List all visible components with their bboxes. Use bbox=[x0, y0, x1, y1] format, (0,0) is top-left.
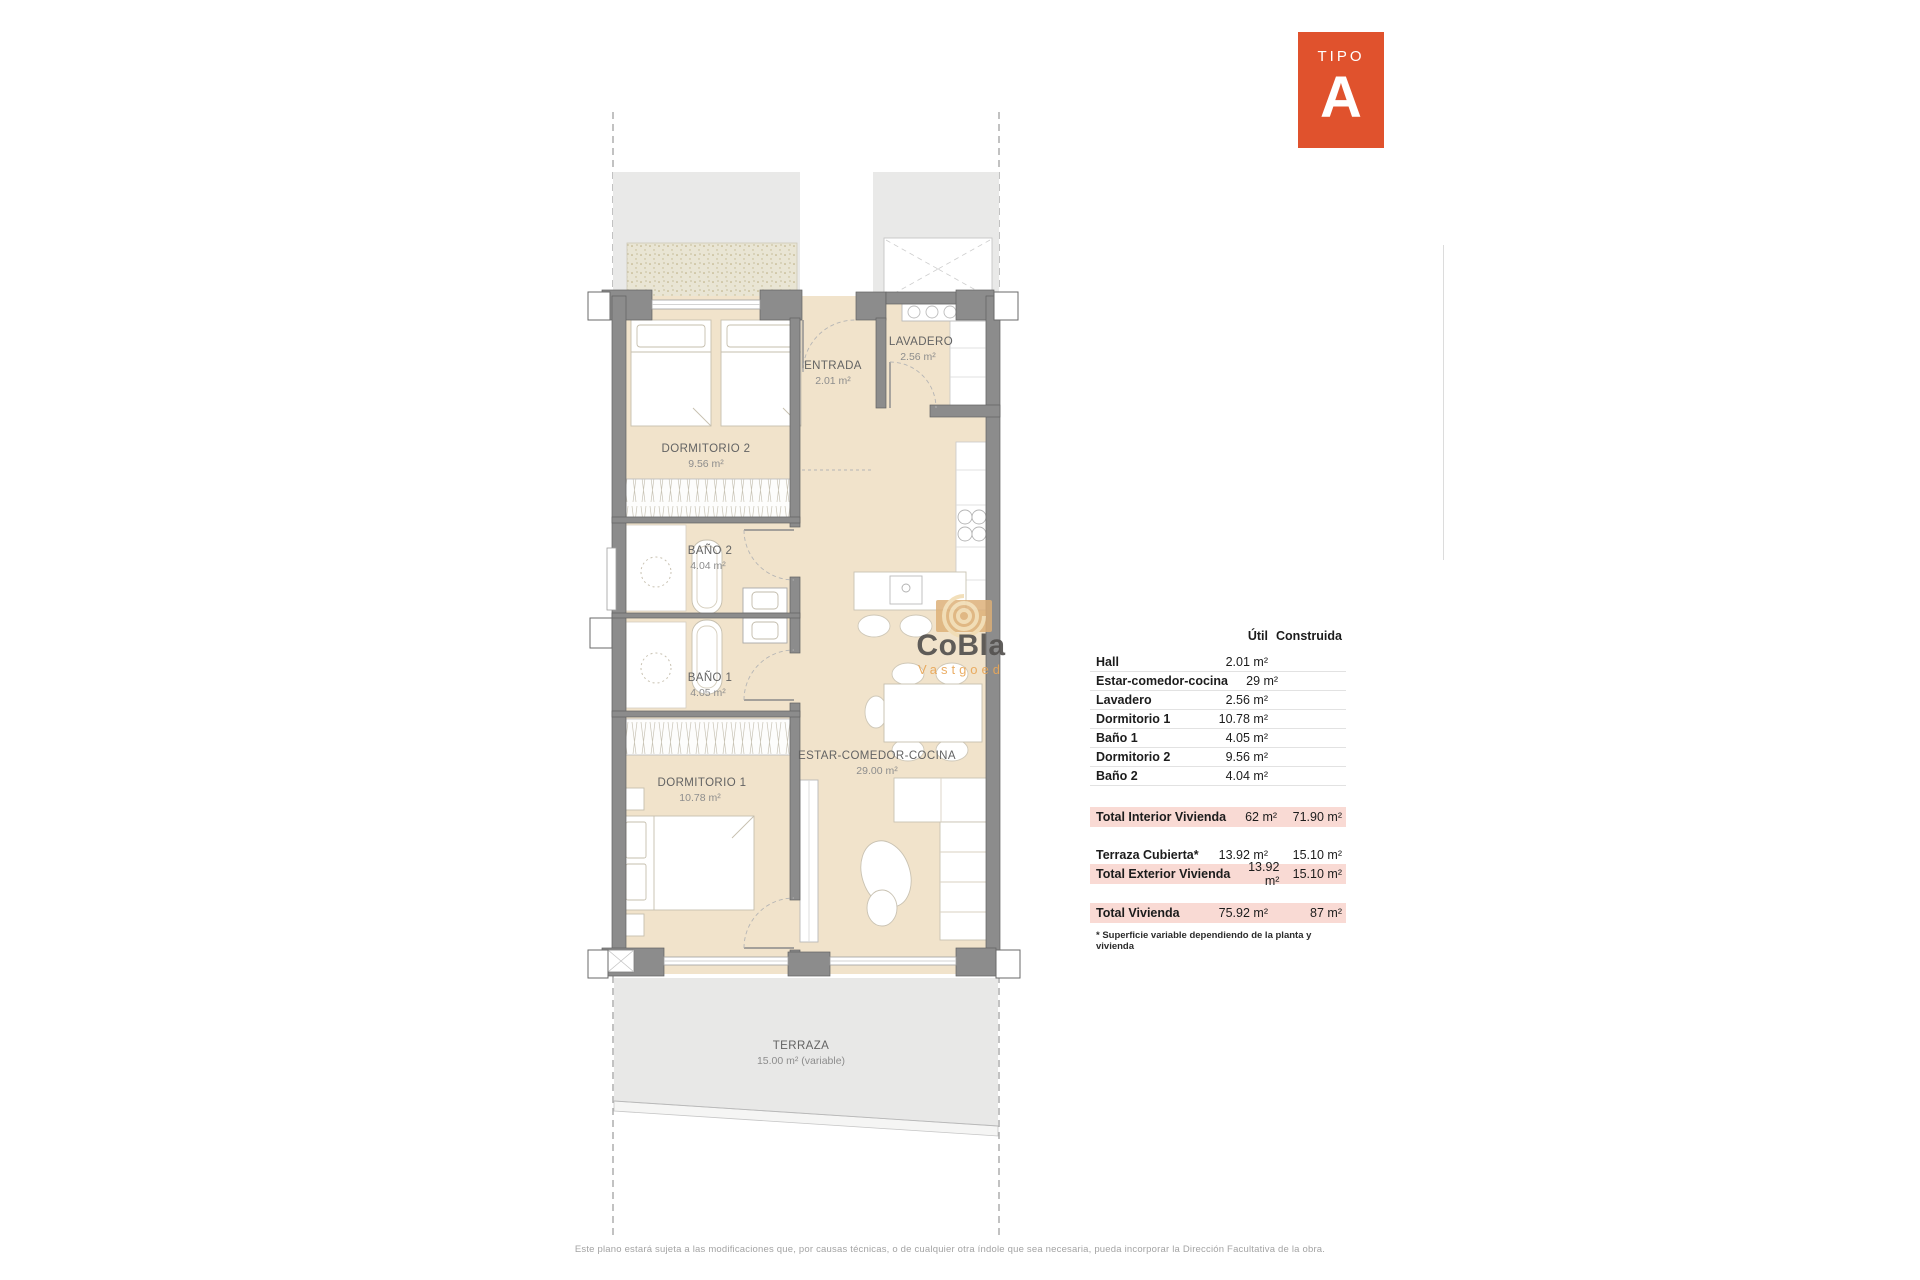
svg-text:4.04 m²: 4.04 m² bbox=[690, 560, 726, 572]
label-entrada: ENTRADA bbox=[804, 360, 862, 372]
total-vivienda-row: Total Vivienda 75.92 m² 87 m² bbox=[1090, 903, 1346, 923]
total-interior-row: Total Interior Vivienda 62 m² 71.90 m² bbox=[1090, 807, 1346, 827]
table-row: Lavadero 2.56 m² bbox=[1090, 691, 1346, 710]
total-exterior-row: Total Exterior Vivienda 13.92 m² 15.10 m… bbox=[1090, 864, 1346, 884]
table-row: Dormitorio 1 10.78 m² bbox=[1090, 710, 1346, 729]
svg-text:10.78 m²: 10.78 m² bbox=[679, 792, 721, 804]
table-row: Baño 2 4.04 m² bbox=[1090, 767, 1346, 786]
svg-text:29.00 m²: 29.00 m² bbox=[856, 765, 898, 777]
label-terraza: TERRAZA bbox=[773, 1040, 829, 1052]
type-badge-label: TIPO bbox=[1317, 48, 1364, 65]
table-header-row: Útil Construida bbox=[1090, 627, 1346, 645]
header-util: Útil bbox=[1210, 629, 1268, 643]
label-dormitorio-1: DORMITORIO 1 bbox=[658, 777, 747, 789]
label-bano-2: BAÑO 2 bbox=[688, 544, 733, 557]
table-row: Dormitorio 2 9.56 m² bbox=[1090, 748, 1346, 767]
type-badge: TIPO A bbox=[1298, 32, 1384, 148]
footer-disclaimer: Este plano estará sujeta a las modificac… bbox=[0, 1244, 1900, 1255]
label-lavadero: LAVADERO bbox=[889, 336, 953, 348]
table-row: Estar-comedor-cocina 29 m² bbox=[1090, 672, 1346, 691]
label-bano-1: BAÑO 1 bbox=[688, 671, 733, 684]
watermark-brand: CoBla bbox=[905, 631, 1017, 661]
table-row: Baño 1 4.05 m² bbox=[1090, 729, 1346, 748]
svg-text:4.05 m²: 4.05 m² bbox=[690, 687, 726, 699]
header-construida: Construida bbox=[1268, 629, 1342, 643]
svg-text:15.00 m² (variable): 15.00 m² (variable) bbox=[757, 1055, 845, 1067]
svg-text:2.56 m²: 2.56 m² bbox=[900, 351, 936, 363]
watermark-sub: Vastgoed bbox=[905, 662, 1017, 677]
watermark: CoBla Vastgoed bbox=[905, 592, 1017, 677]
table-footnote: * Superficie variable dependiendo de la … bbox=[1090, 930, 1346, 952]
upper-patio-area bbox=[613, 172, 999, 300]
svg-text:9.56 m²: 9.56 m² bbox=[688, 458, 724, 470]
type-badge-letter: A bbox=[1320, 69, 1362, 127]
label-estar-comedor-cocina: ESTAR-COMEDOR-COCINA bbox=[798, 750, 956, 762]
areas-table: Útil Construida Hall 2.01 m² Estar-comed… bbox=[1090, 627, 1346, 952]
page-fold-line bbox=[1443, 245, 1444, 560]
terraza-cubierta-row: Terraza Cubierta* 13.92 m² 15.10 m² bbox=[1090, 845, 1346, 864]
svg-text:2.01 m²: 2.01 m² bbox=[815, 375, 851, 387]
table-rows: Hall 2.01 m² Estar-comedor-cocina 29 m² … bbox=[1090, 653, 1346, 786]
label-dormitorio-2: DORMITORIO 2 bbox=[662, 443, 751, 455]
table-row: Hall 2.01 m² bbox=[1090, 653, 1346, 672]
